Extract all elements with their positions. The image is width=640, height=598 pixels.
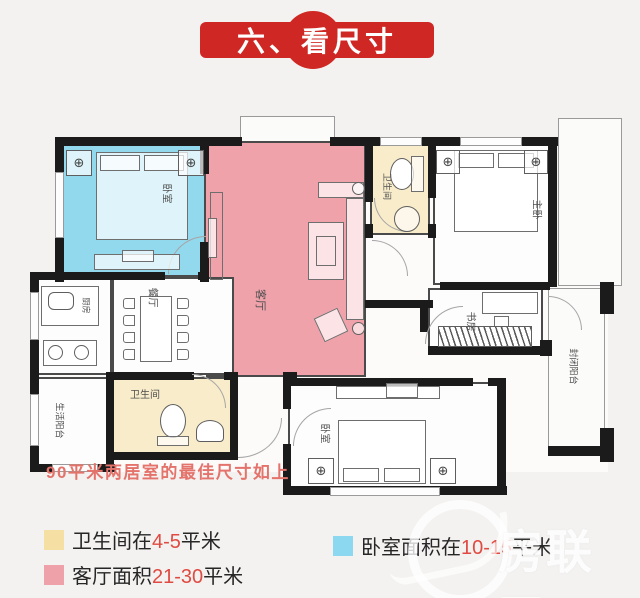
infographic-canvas: 六、 看 尺寸	[0, 0, 640, 598]
kitchen-sink-bowl	[48, 292, 74, 310]
window	[30, 394, 39, 446]
label-bathroom-bottom: 卫生间	[130, 386, 160, 401]
tv-unit	[122, 250, 154, 262]
wall-segment	[283, 385, 291, 409]
sink-icon	[196, 420, 224, 442]
legend-swatch-blue	[333, 536, 353, 556]
chair	[177, 315, 189, 326]
label-bedroom-bottom: 卧室	[319, 424, 334, 444]
chair	[177, 349, 189, 360]
legend-item-bedroom: 卧室面积在10-15平米	[333, 531, 552, 560]
chair	[177, 332, 189, 343]
burner	[74, 345, 89, 360]
desk	[482, 292, 538, 314]
toilet-icon	[160, 404, 186, 438]
legend-value: 4-5	[152, 531, 181, 553]
wall-segment	[440, 282, 550, 290]
lamp-glyph: ⊕	[316, 463, 327, 479]
room-utility-balcony	[36, 377, 110, 467]
pillow	[458, 153, 494, 168]
label-utility-balcony: 生活阳台	[54, 402, 67, 438]
tv-unit	[386, 383, 418, 398]
pillow	[100, 155, 140, 171]
title-suffix: 尺寸	[333, 20, 397, 60]
lamp-glyph: ⊕	[74, 155, 85, 171]
open-balcony-top-right	[558, 118, 622, 286]
plan-note: 90平米两居室的最佳尺寸如上	[46, 458, 290, 483]
sink-icon	[394, 206, 420, 232]
pillow	[343, 468, 379, 482]
room-dining	[112, 277, 234, 375]
lamp-glyph: ⊕	[438, 463, 449, 479]
legend-value: 10-15	[461, 537, 512, 559]
legend-value: 21-30	[152, 566, 203, 588]
label-living: 客厅	[253, 289, 269, 311]
wall-segment	[106, 372, 194, 380]
label-dining: 餐厅	[147, 288, 162, 308]
lamp-glyph: ⊕	[186, 155, 197, 171]
nightstand-lamp-icon: ⊕	[430, 458, 456, 484]
lamp-glyph: ⊕	[443, 154, 454, 170]
toilet-base	[157, 436, 189, 446]
tv	[208, 218, 217, 258]
side-table	[352, 182, 365, 195]
side-table	[352, 322, 365, 335]
wall-segment	[230, 372, 238, 460]
legend-prefix: 卧室面积在	[361, 537, 461, 559]
window	[30, 292, 39, 340]
chair	[123, 315, 135, 326]
burner	[48, 345, 63, 360]
wall-segment	[420, 300, 428, 332]
label-kitchen: 厨房	[81, 298, 92, 314]
legend-swatch-yellow	[44, 530, 64, 550]
legend-suffix: 平米	[181, 531, 221, 553]
bookshelf	[438, 326, 532, 347]
legend-suffix: 平米	[203, 566, 243, 588]
title-prefix: 六、	[237, 20, 301, 60]
nightstand-lamp-icon: ⊕	[66, 150, 92, 176]
legend-text: 卧室面积在10-15平米	[361, 531, 552, 560]
label-bedroom-left: 卧室	[161, 184, 176, 204]
nightstand-lamp-icon: ⊕	[436, 150, 460, 174]
nightstand-lamp-icon: ⊕	[308, 458, 334, 484]
legend-prefix: 客厅面积	[72, 566, 152, 588]
legend-item-bathroom: 卫生间在4-5平米	[44, 525, 221, 554]
window	[460, 137, 522, 146]
legend-text: 卫生间在4-5平米	[72, 525, 221, 554]
coffee-table-inner	[316, 236, 336, 266]
wall-segment	[540, 340, 552, 356]
label-bathroom-top: 卫生间	[381, 173, 394, 200]
window	[330, 487, 440, 496]
wall-segment	[428, 346, 546, 355]
chair	[123, 349, 135, 360]
chair	[177, 298, 189, 309]
label-enclosed-balcony: 封闭阳台	[568, 348, 581, 384]
window	[380, 137, 422, 146]
legend-text: 客厅面积21-30平米	[72, 560, 243, 589]
chair	[123, 298, 135, 309]
label-study: 书房	[465, 312, 480, 332]
legend-suffix: 平米	[512, 537, 552, 559]
legend-prefix: 卫生间在	[72, 531, 152, 553]
nightstand-lamp-icon: ⊕	[178, 150, 204, 176]
pillow	[384, 468, 420, 482]
title-highlight: 看	[301, 20, 333, 60]
wall-segment	[55, 137, 242, 146]
wall-segment	[365, 224, 373, 238]
wall-segment	[497, 382, 506, 492]
lamp-glyph: ⊕	[531, 154, 542, 170]
wall-segment	[548, 446, 608, 456]
wall-segment	[600, 428, 614, 462]
window	[55, 172, 64, 238]
wall-segment	[548, 137, 557, 287]
wall-segment	[365, 140, 373, 202]
wall-segment	[600, 282, 614, 314]
wall-segment	[291, 378, 473, 386]
wall-segment	[428, 140, 436, 198]
chair	[123, 332, 135, 343]
sofa-back	[346, 198, 364, 320]
wall-segment	[30, 272, 165, 280]
nightstand-lamp-icon: ⊕	[524, 150, 548, 174]
legend-item-living: 客厅面积21-30平米	[44, 560, 243, 589]
wall-segment	[428, 224, 436, 238]
title-banner: 六、 看 尺寸	[200, 22, 434, 58]
wall-segment	[488, 378, 506, 386]
toilet-tank	[411, 156, 424, 192]
legend-swatch-pink	[44, 565, 64, 585]
label-master: 主卧	[531, 200, 546, 220]
